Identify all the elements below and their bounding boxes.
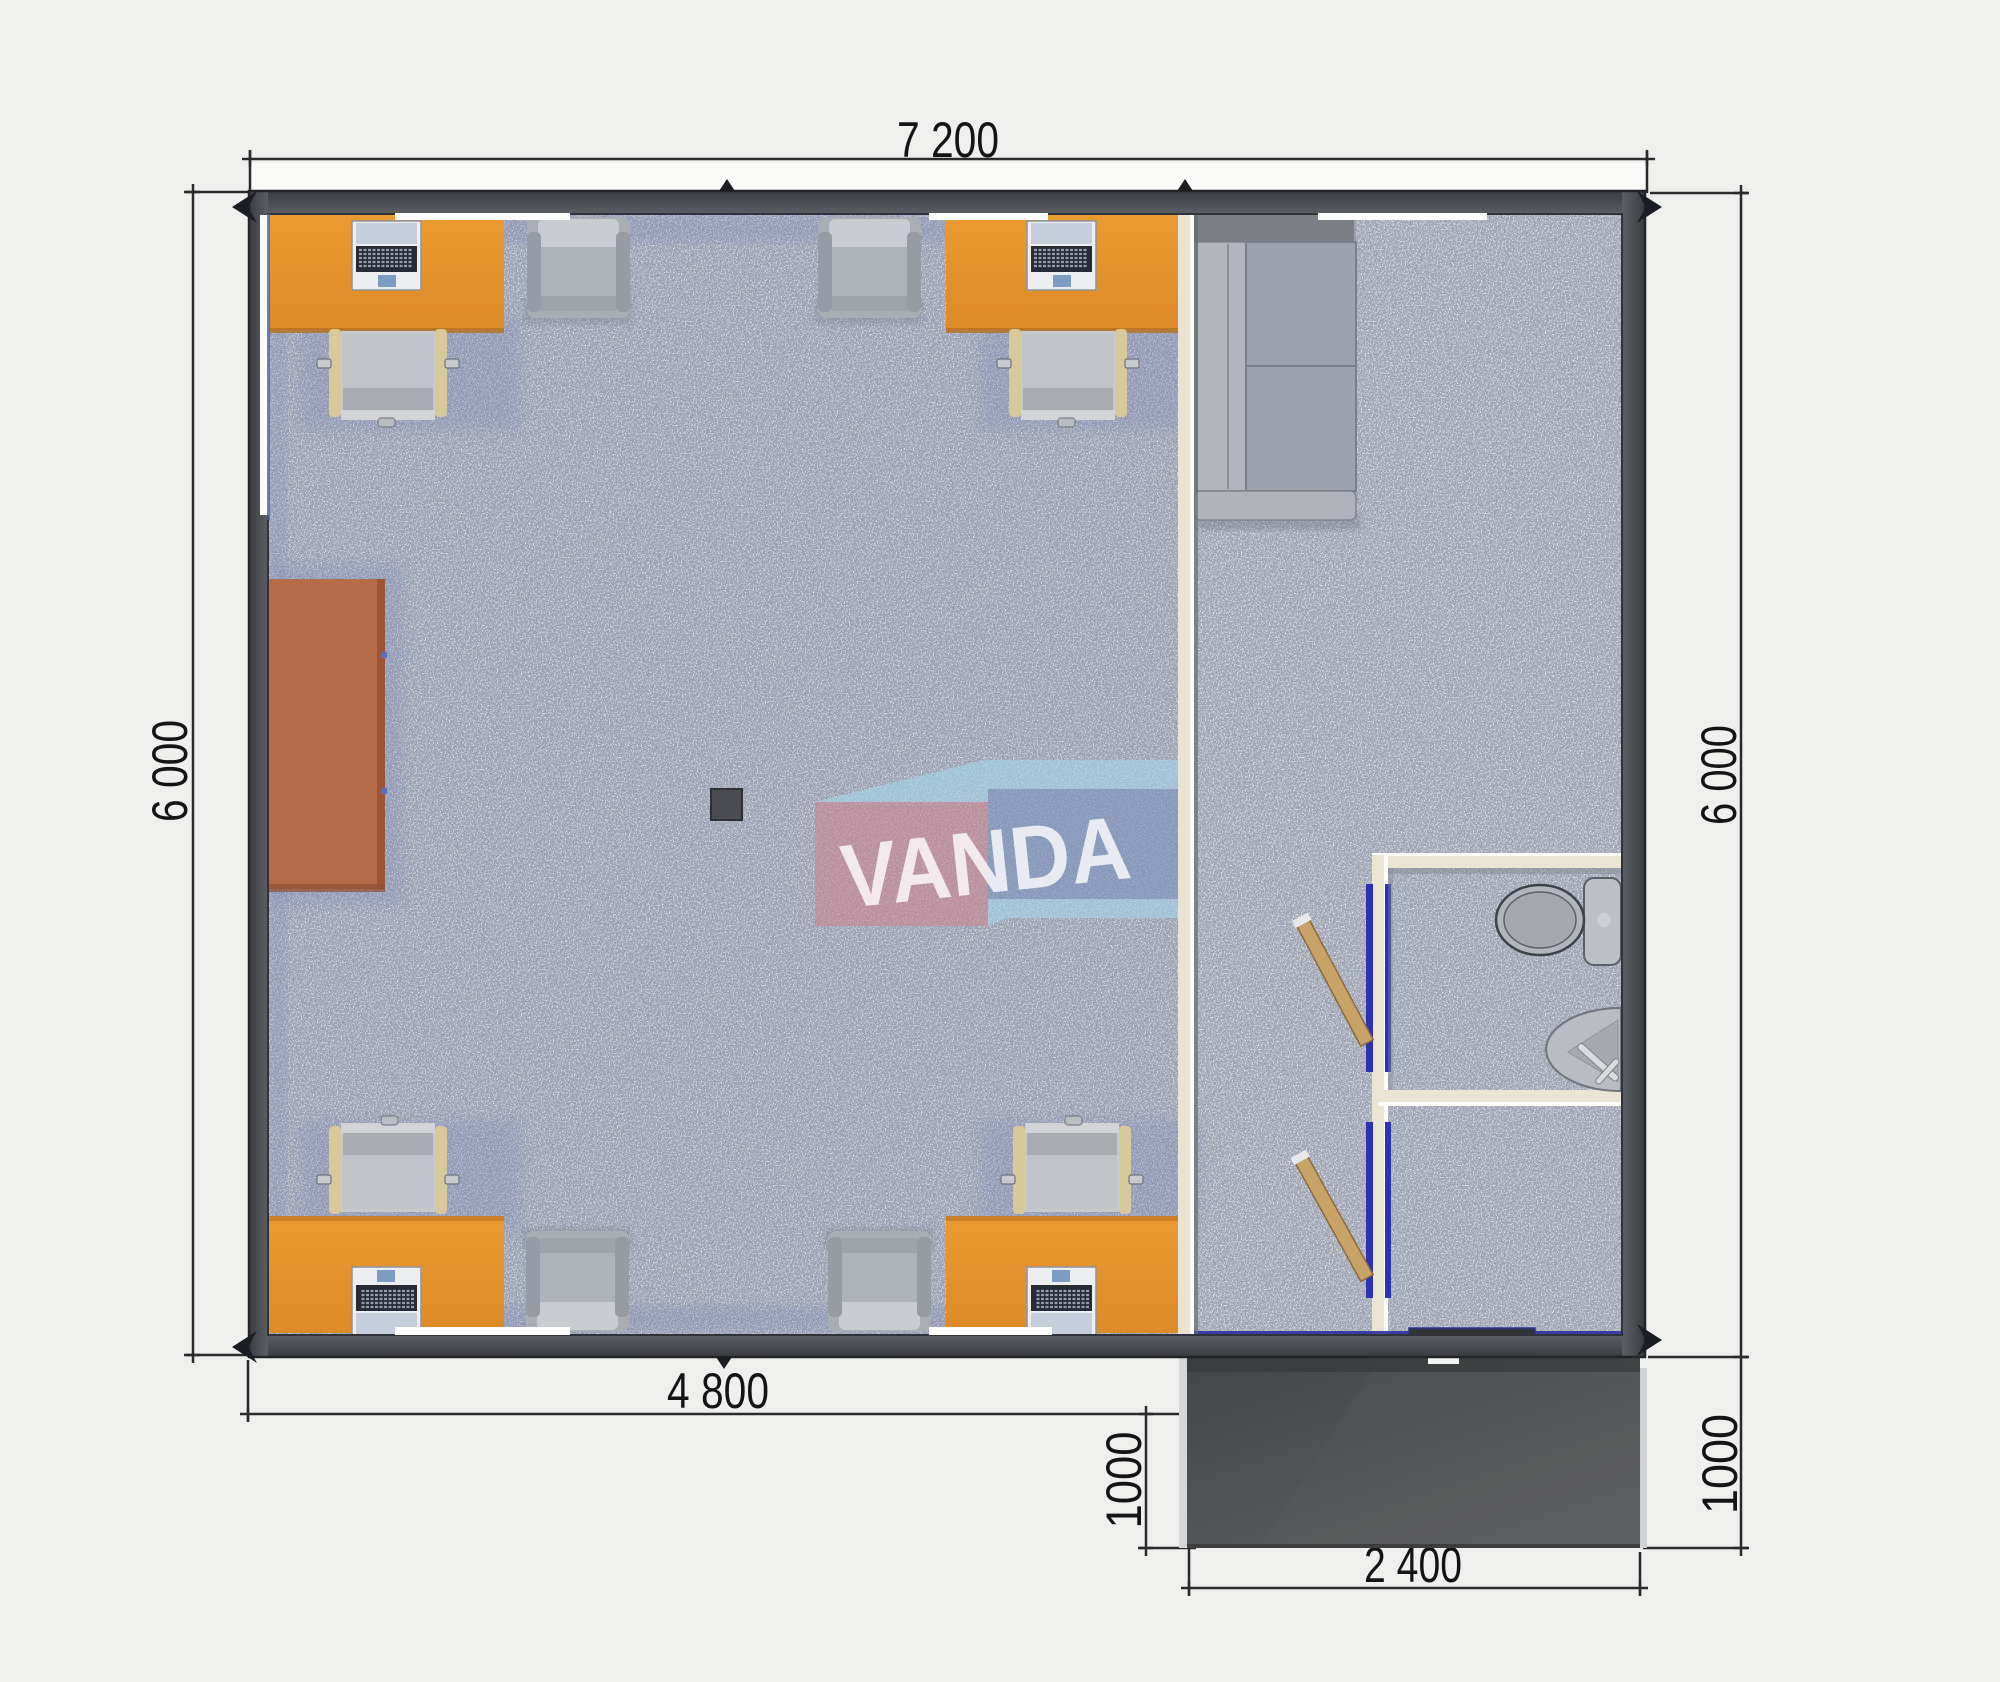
svg-text:6 000: 6 000 — [142, 720, 198, 822]
svg-text:4 800: 4 800 — [667, 1363, 769, 1419]
svg-text:6 000: 6 000 — [1691, 725, 1747, 825]
svg-text:1000: 1000 — [1692, 1414, 1748, 1514]
svg-text:7 200: 7 200 — [897, 112, 999, 168]
svg-text:1000: 1000 — [1096, 1432, 1152, 1529]
